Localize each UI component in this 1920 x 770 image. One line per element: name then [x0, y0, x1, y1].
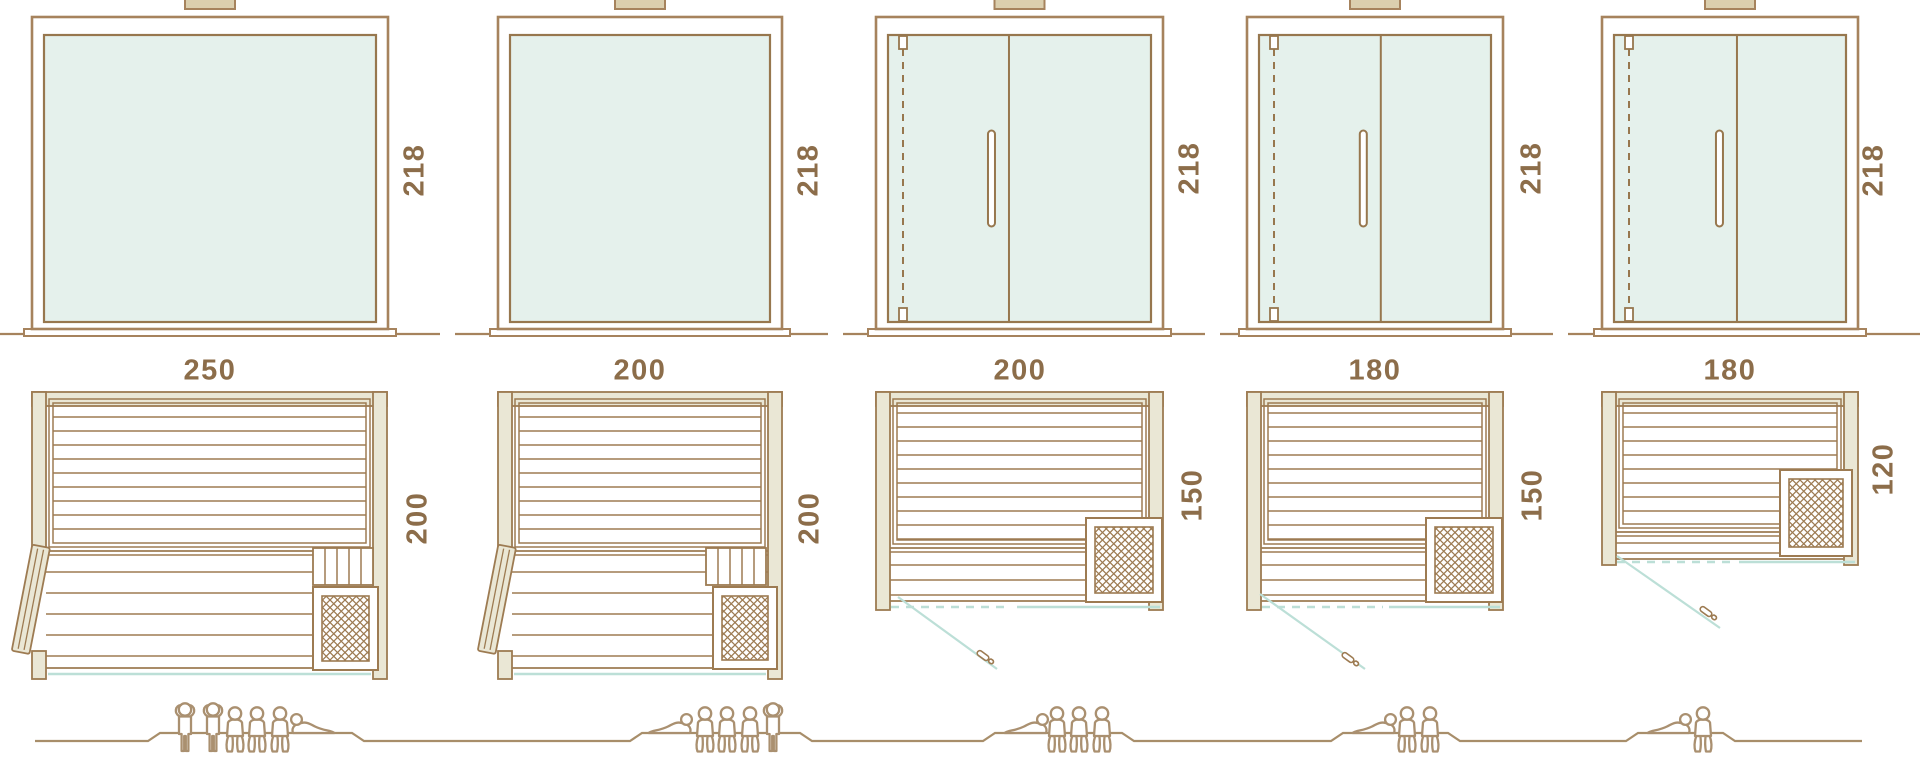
open-wood-door: [12, 545, 50, 654]
wall-left: [498, 392, 512, 548]
person-seated-icon: [742, 707, 759, 751]
person-lying-icon: [291, 714, 334, 733]
person-lying-icon: [1353, 714, 1396, 733]
floor-plan-sauna-200x200: [478, 392, 782, 679]
plan-depth-label: 200: [796, 492, 825, 545]
hinge-icon: [1625, 308, 1633, 321]
floor-plan-sauna-200x150: [876, 392, 1163, 669]
capacity-strip: [35, 703, 1862, 751]
person-lying-icon: [1005, 714, 1048, 733]
plan-depth-label: 120: [1870, 443, 1899, 496]
person-lying-icon: [1648, 714, 1691, 733]
door-handle-icon: [988, 131, 995, 227]
vent-icon: [1705, 0, 1755, 9]
heater-icon: [1780, 470, 1852, 556]
wall-left: [1247, 392, 1261, 610]
vent-icon: [1350, 0, 1400, 9]
person-standing-icon: [176, 703, 194, 751]
door-handle-icon: [1360, 131, 1367, 227]
heater-icon: [313, 587, 378, 670]
person-standing-icon: [764, 703, 782, 751]
front-height-label: 218: [795, 144, 824, 197]
front-width-label: 200: [994, 357, 1047, 386]
glass-panel: [888, 35, 1151, 322]
front-elevation-sauna-180x120: [1594, 0, 1866, 336]
plan-depth-label: 150: [1519, 469, 1548, 522]
capacity-group-sauna-250x200: [176, 703, 335, 751]
glass-panel: [1259, 35, 1491, 322]
wall-left-stub: [32, 651, 46, 679]
hinge-icon: [899, 308, 907, 321]
wall-left: [876, 392, 890, 610]
front-height-label: 218: [1518, 142, 1547, 195]
front-height-label: 218: [401, 144, 430, 197]
vent-icon: [995, 0, 1045, 9]
capacity-ground-line: [35, 733, 1862, 741]
front-height-label: 218: [1860, 144, 1889, 197]
front-width-label: 180: [1349, 357, 1402, 386]
hinge-icon: [1270, 308, 1278, 321]
floor-plan-sauna-250x200: [12, 392, 387, 679]
sauna-size-comparison-diagram: 250 200 200 180 180 218 218 218 218 218 …: [0, 0, 1920, 770]
door-handle-icon: [976, 650, 994, 665]
glass-panel: [1614, 35, 1846, 322]
front-width-label: 200: [614, 357, 667, 386]
front-elevation-sauna-200x200: [490, 0, 790, 336]
capacity-group-sauna-180x150: [1353, 707, 1439, 751]
front-elevation-sauna-250x200: [24, 0, 396, 336]
open-wood-door: [478, 545, 516, 654]
hinge-icon: [899, 36, 907, 49]
front-width-label: 250: [184, 357, 237, 386]
person-seated-icon: [1049, 707, 1066, 751]
person-seated-icon: [249, 707, 266, 751]
vent-icon: [615, 0, 665, 9]
capacity-group-sauna-200x150: [1005, 707, 1111, 751]
plan-depth-label: 150: [1179, 469, 1208, 522]
door-handle-icon: [1341, 652, 1359, 667]
person-seated-icon: [1071, 707, 1088, 751]
person-seated-icon: [697, 707, 714, 751]
heater-icon: [713, 587, 777, 669]
floor-plan-sauna-180x120: [1602, 392, 1858, 628]
hinge-icon: [1625, 36, 1633, 49]
person-seated-icon: [1399, 707, 1416, 751]
bench-slats: [706, 548, 766, 585]
vent-icon: [185, 0, 235, 9]
door-handle-icon: [1716, 131, 1723, 227]
hinge-icon: [1270, 36, 1278, 49]
wall-left-stub: [498, 651, 512, 679]
capacity-group-sauna-200x200: [649, 703, 783, 751]
plan-depth-label: 200: [404, 492, 433, 545]
front-height-label: 218: [1176, 142, 1205, 195]
wall-left: [1602, 392, 1616, 565]
glass-panel: [510, 35, 770, 322]
wall-left: [32, 392, 46, 548]
capacity-group-sauna-180x120: [1648, 707, 1712, 751]
person-seated-icon: [719, 707, 736, 751]
person-seated-icon: [272, 707, 289, 751]
person-seated-icon: [1094, 707, 1111, 751]
glass-panel: [44, 35, 376, 322]
person-seated-icon: [227, 707, 244, 751]
bench-slats: [313, 548, 373, 585]
heater-icon: [1086, 518, 1162, 602]
person-lying-icon: [649, 714, 692, 733]
front-elevation-sauna-200x150: [868, 0, 1171, 336]
person-seated-icon: [1695, 707, 1712, 751]
person-seated-icon: [1422, 707, 1439, 751]
floor-plan-sauna-180x150: [1247, 392, 1503, 669]
heater-icon: [1426, 518, 1502, 602]
person-standing-icon: [204, 703, 222, 751]
diagram-canvas: [0, 0, 1920, 770]
front-width-label: 180: [1704, 357, 1757, 386]
front-elevation-sauna-180x150: [1239, 0, 1511, 336]
